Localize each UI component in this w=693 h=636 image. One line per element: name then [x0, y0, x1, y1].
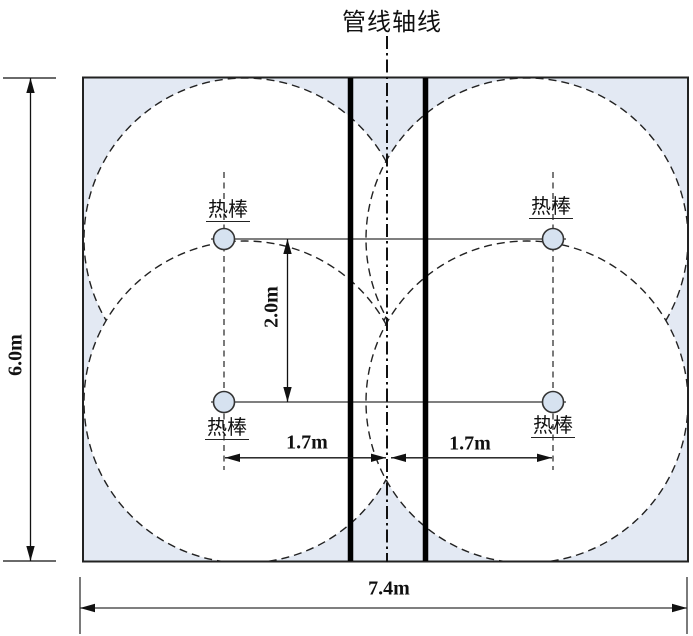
arrowhead-down-icon — [26, 546, 34, 561]
pipeline-thermal-rod-diagram: 管线轴线 热棒 热棒 热棒 热棒 6.0m 7.4m 2.0m 1.7m 1.7… — [0, 0, 693, 636]
diagram-canvas — [0, 0, 693, 636]
thermal-rod-bottom-right — [543, 392, 564, 413]
thermal-rod-top-left — [214, 229, 235, 250]
arrowhead-right-icon — [672, 604, 687, 612]
dim-text-1-7m-right: 1.7m — [449, 433, 491, 456]
dim-text-7-4m: 7.4m — [368, 578, 410, 601]
pipeline-axis-title: 管线轴线 — [342, 2, 442, 37]
thermal-rod-label-top-left: 热棒 — [206, 200, 250, 222]
dim-text-2m: 2.0m — [261, 286, 284, 328]
thermal-rod-label-bottom-left: 热棒 — [205, 418, 249, 440]
dim-text-1-7m-left: 1.7m — [286, 432, 328, 455]
arrowhead-left-icon — [80, 604, 95, 612]
thermal-rod-label-top-right: 热棒 — [529, 197, 573, 219]
thermal-rod-label-bottom-right: 热棒 — [531, 416, 575, 438]
arrowhead-up-icon — [26, 78, 34, 93]
thermal-rod-bottom-left — [214, 392, 235, 413]
dim-text-6m: 6.0m — [5, 334, 28, 376]
thermal-rod-top-right — [543, 229, 564, 250]
dim-height-6m — [3, 78, 56, 561]
